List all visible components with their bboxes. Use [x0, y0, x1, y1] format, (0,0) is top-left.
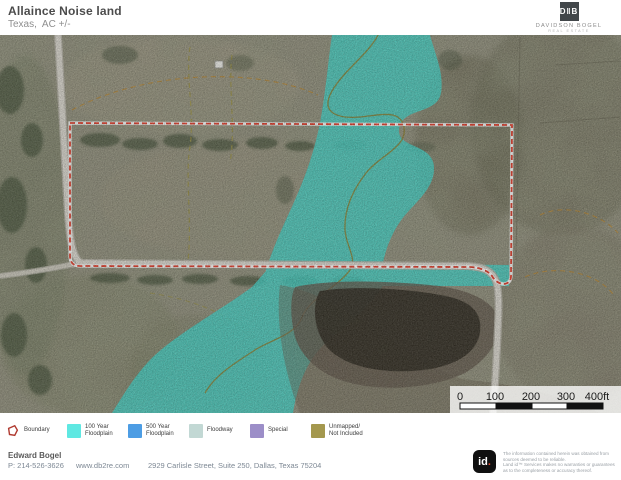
unmapped-swatch [311, 424, 325, 438]
scale-tick: 100 [486, 391, 504, 403]
scale-tick: 200 [522, 391, 540, 403]
floodplain-500-swatch [128, 424, 142, 438]
agent-website: www.db2re.com [76, 461, 129, 470]
legend-item-500yr: 500 Year Floodplain [128, 424, 180, 438]
agent-phone: P: 214-526-3626 [8, 461, 64, 470]
map-legend: Boundary 100 Year Floodplain 500 Year Fl… [0, 413, 621, 448]
davidson-bogel-logo: D‖B DAVIDSON BOGEL REAL ESTATE [527, 2, 611, 33]
page-subtitle: Texas, AC +/- [8, 19, 71, 30]
scale-tick: 0 [457, 391, 463, 403]
legend-item-unmapped: Unmapped/ Not Included [311, 424, 369, 438]
disclaimer-line: Land id™ Services makes no warranties or… [503, 462, 619, 468]
aerial-map: 0 100 200 300 400ft [0, 35, 621, 413]
page-title: Allaince Noise land [8, 4, 122, 18]
agent-name: Edward Bogel [8, 451, 61, 460]
brand-tagline: REAL ESTATE [548, 29, 590, 33]
grain-light [0, 35, 621, 413]
floodplain-100-swatch [67, 424, 81, 438]
legend-item-boundary: Boundary [6, 424, 58, 438]
special-swatch [250, 424, 264, 438]
scale-tick: 400ft [585, 391, 609, 403]
legend-label: Floodway [207, 427, 241, 434]
legend-item-100yr: 100 Year Floodplain [67, 424, 119, 438]
scale-tick: 300 [557, 391, 575, 403]
office-address: 2929 Carlisle Street, Suite 250, Dallas,… [148, 461, 321, 470]
legend-label: 500 Year Floodplain [146, 424, 180, 438]
floodway-swatch [189, 424, 203, 438]
legend-label: Unmapped/ Not Included [329, 424, 369, 438]
boundary-outline-icon [6, 424, 20, 438]
map-export-page: Allaince Noise land Texas, AC +/- D‖B DA… [0, 0, 621, 480]
legend-item-special: Special [250, 424, 302, 438]
legend-label: 100 Year Floodplain [85, 424, 119, 438]
legend-item-floodway: Floodway [189, 424, 241, 438]
disclaimer-line: as to the completeness or accuracy there… [503, 468, 619, 474]
land-id-logo: id. [473, 450, 496, 473]
disclaimer-text: The information contained herein was obt… [503, 451, 619, 473]
db-logo-icon: D‖B [560, 2, 579, 21]
land-id-logo-dot: . [488, 456, 491, 468]
land-id-logo-text: id [478, 456, 488, 468]
map-canvas: 0 100 200 300 400ft [0, 35, 621, 413]
legend-label: Boundary [24, 427, 58, 434]
scale-bar: 0 100 200 300 400ft [450, 386, 621, 413]
disclaimer-line: The information contained herein was obt… [503, 451, 619, 457]
legend-label: Special [268, 427, 302, 434]
